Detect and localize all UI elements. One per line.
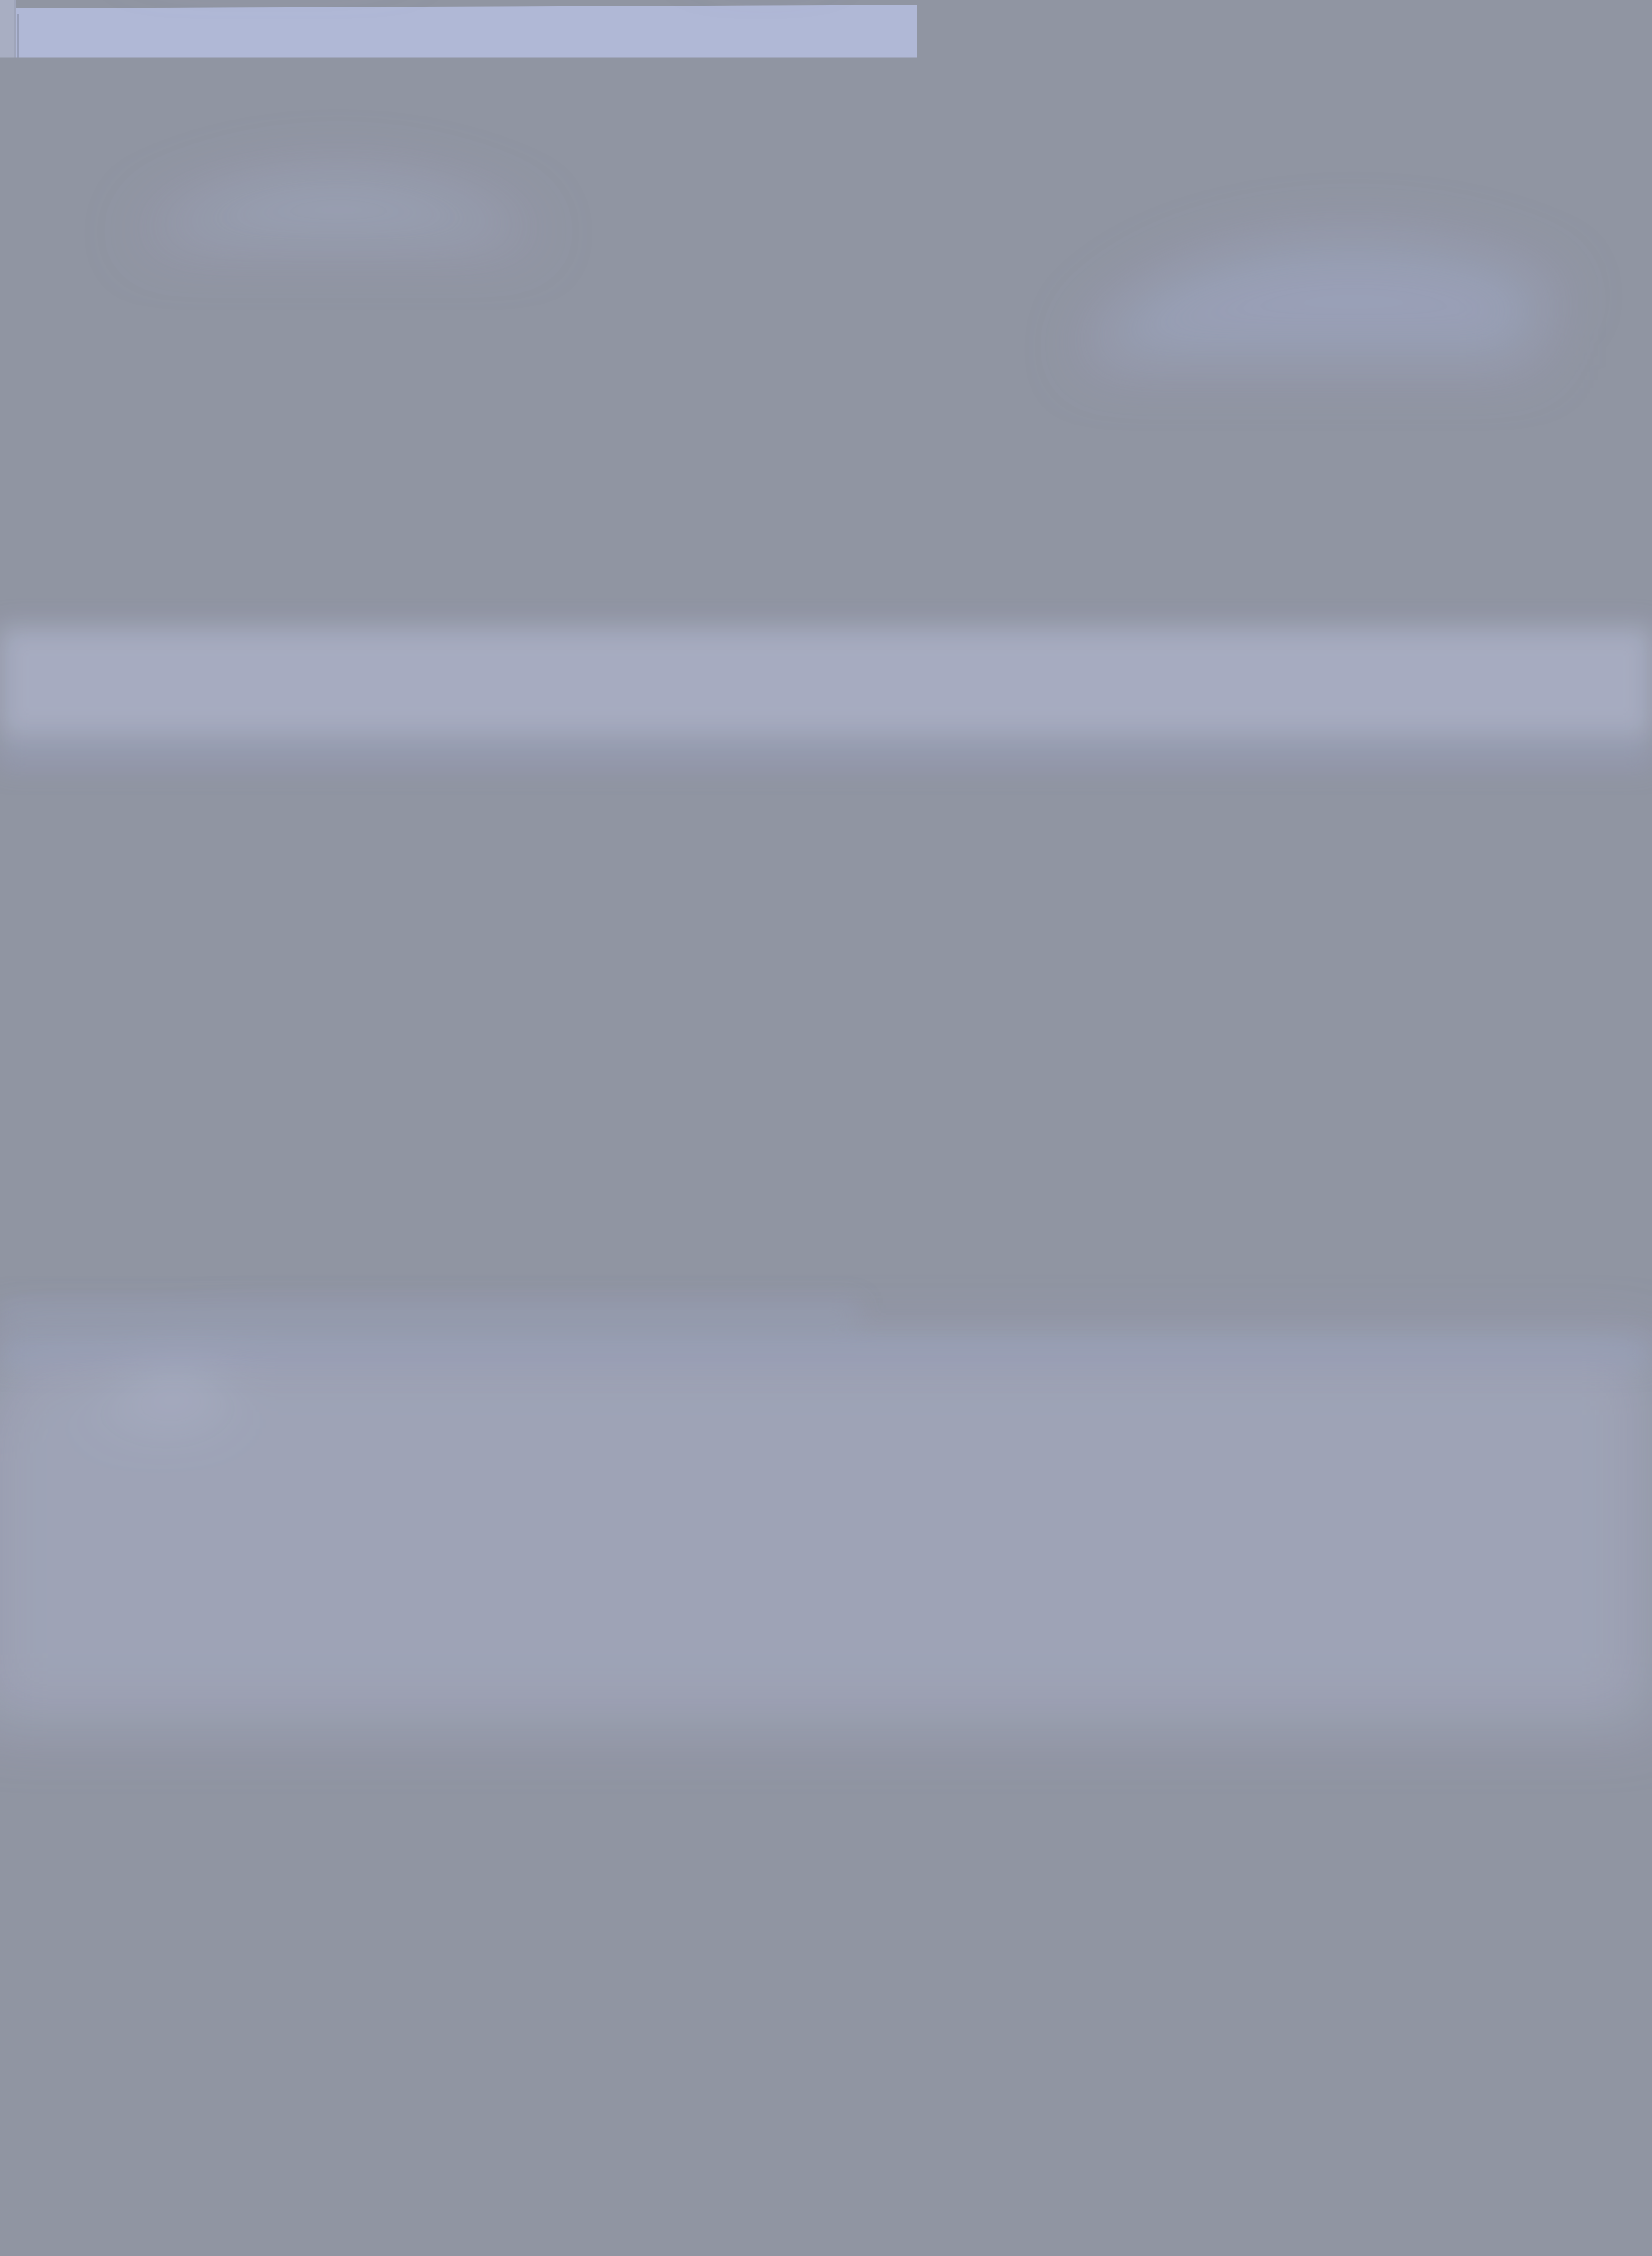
svg-text:T4.C': T4.C' (1259, 1697, 1281, 1776)
svg-text:Quinta da Beloura II: Quinta da Beloura II (109, 1981, 124, 2130)
svg-text:PLANTA SIMPLIFICADA DO ACESSO: PLANTA SIMPLIFICADA DO ACESSO AO FOGO (197, 1933, 217, 2256)
svg-text:Lote EA16: Lote EA16 (109, 2161, 124, 2233)
svg-text:QUARTO: QUARTO (756, 1480, 765, 1527)
svg-text:ABRIL 2005: ABRIL 2005 (60, 1930, 75, 2016)
svg-text:SOCIEDADE DE CONSTRUÇÕES: SOCIEDADE DE CONSTRUÇÕES (134, 1715, 143, 1867)
svg-text:T4.B': T4.B' (1327, 1023, 1348, 1102)
svg-text:QUARTO SUITE: QUARTO SUITE (928, 1585, 936, 1673)
svg-text:SALA COMUM: SALA COMUM (616, 971, 630, 1057)
svg-text:31,1: 31,1 (1214, 2099, 1234, 2135)
svg-text:CONFER: CONFER (1284, 2085, 1313, 2233)
svg-text:DIGITALIZADO: DIGITALIZADO (1546, 2106, 1578, 2256)
svg-text:08|2483|2001: 08|2483|2001 (162, 2100, 186, 2256)
svg-text:LOCAL:: LOCAL: (109, 1932, 119, 1969)
svg-text:HALL: HALL (834, 1151, 842, 1179)
svg-text:DESPENSA: DESPENSA (1011, 1054, 1018, 1096)
svg-text:LAVABO SOCIAL: LAVABO SOCIAL (982, 1303, 989, 1362)
svg-text:COZINHA: COZINHA (884, 964, 898, 1005)
svg-text:1:100: 1:100 (72, 2128, 86, 2160)
svg-text:WC BANHO: WC BANHO (779, 1284, 785, 1307)
svg-text:Santos Amaro & José Pimenta, L: Santos Amaro & José Pimenta, Lda. (121, 1718, 129, 1859)
svg-text:ESTENDAL: ESTENDAL (934, 812, 940, 848)
svg-text:REQUERENTE:: REQUERENTE: (206, 1715, 217, 1791)
svg-text:ESCALA:: ESCALA: (64, 2069, 73, 2108)
svg-text:QUARTO SUITE: QUARTO SUITE (566, 1411, 574, 1499)
svg-text:HALL: HALL (796, 1336, 803, 1351)
svg-text:VARANDA: VARANDA (851, 808, 858, 844)
svg-text:WC BANHO: WC BANHO (648, 1219, 654, 1264)
svg-text:SAÍDA DE EMERGÊNCIA EM CASO DE: SAÍDA DE EMERGÊNCIA EM CASO DE INCÊNDIO (585, 1757, 599, 2051)
svg-text:2019: 2019 (1237, 2201, 1257, 2241)
svg-text:T3.E: T3.E (971, 1146, 995, 1218)
